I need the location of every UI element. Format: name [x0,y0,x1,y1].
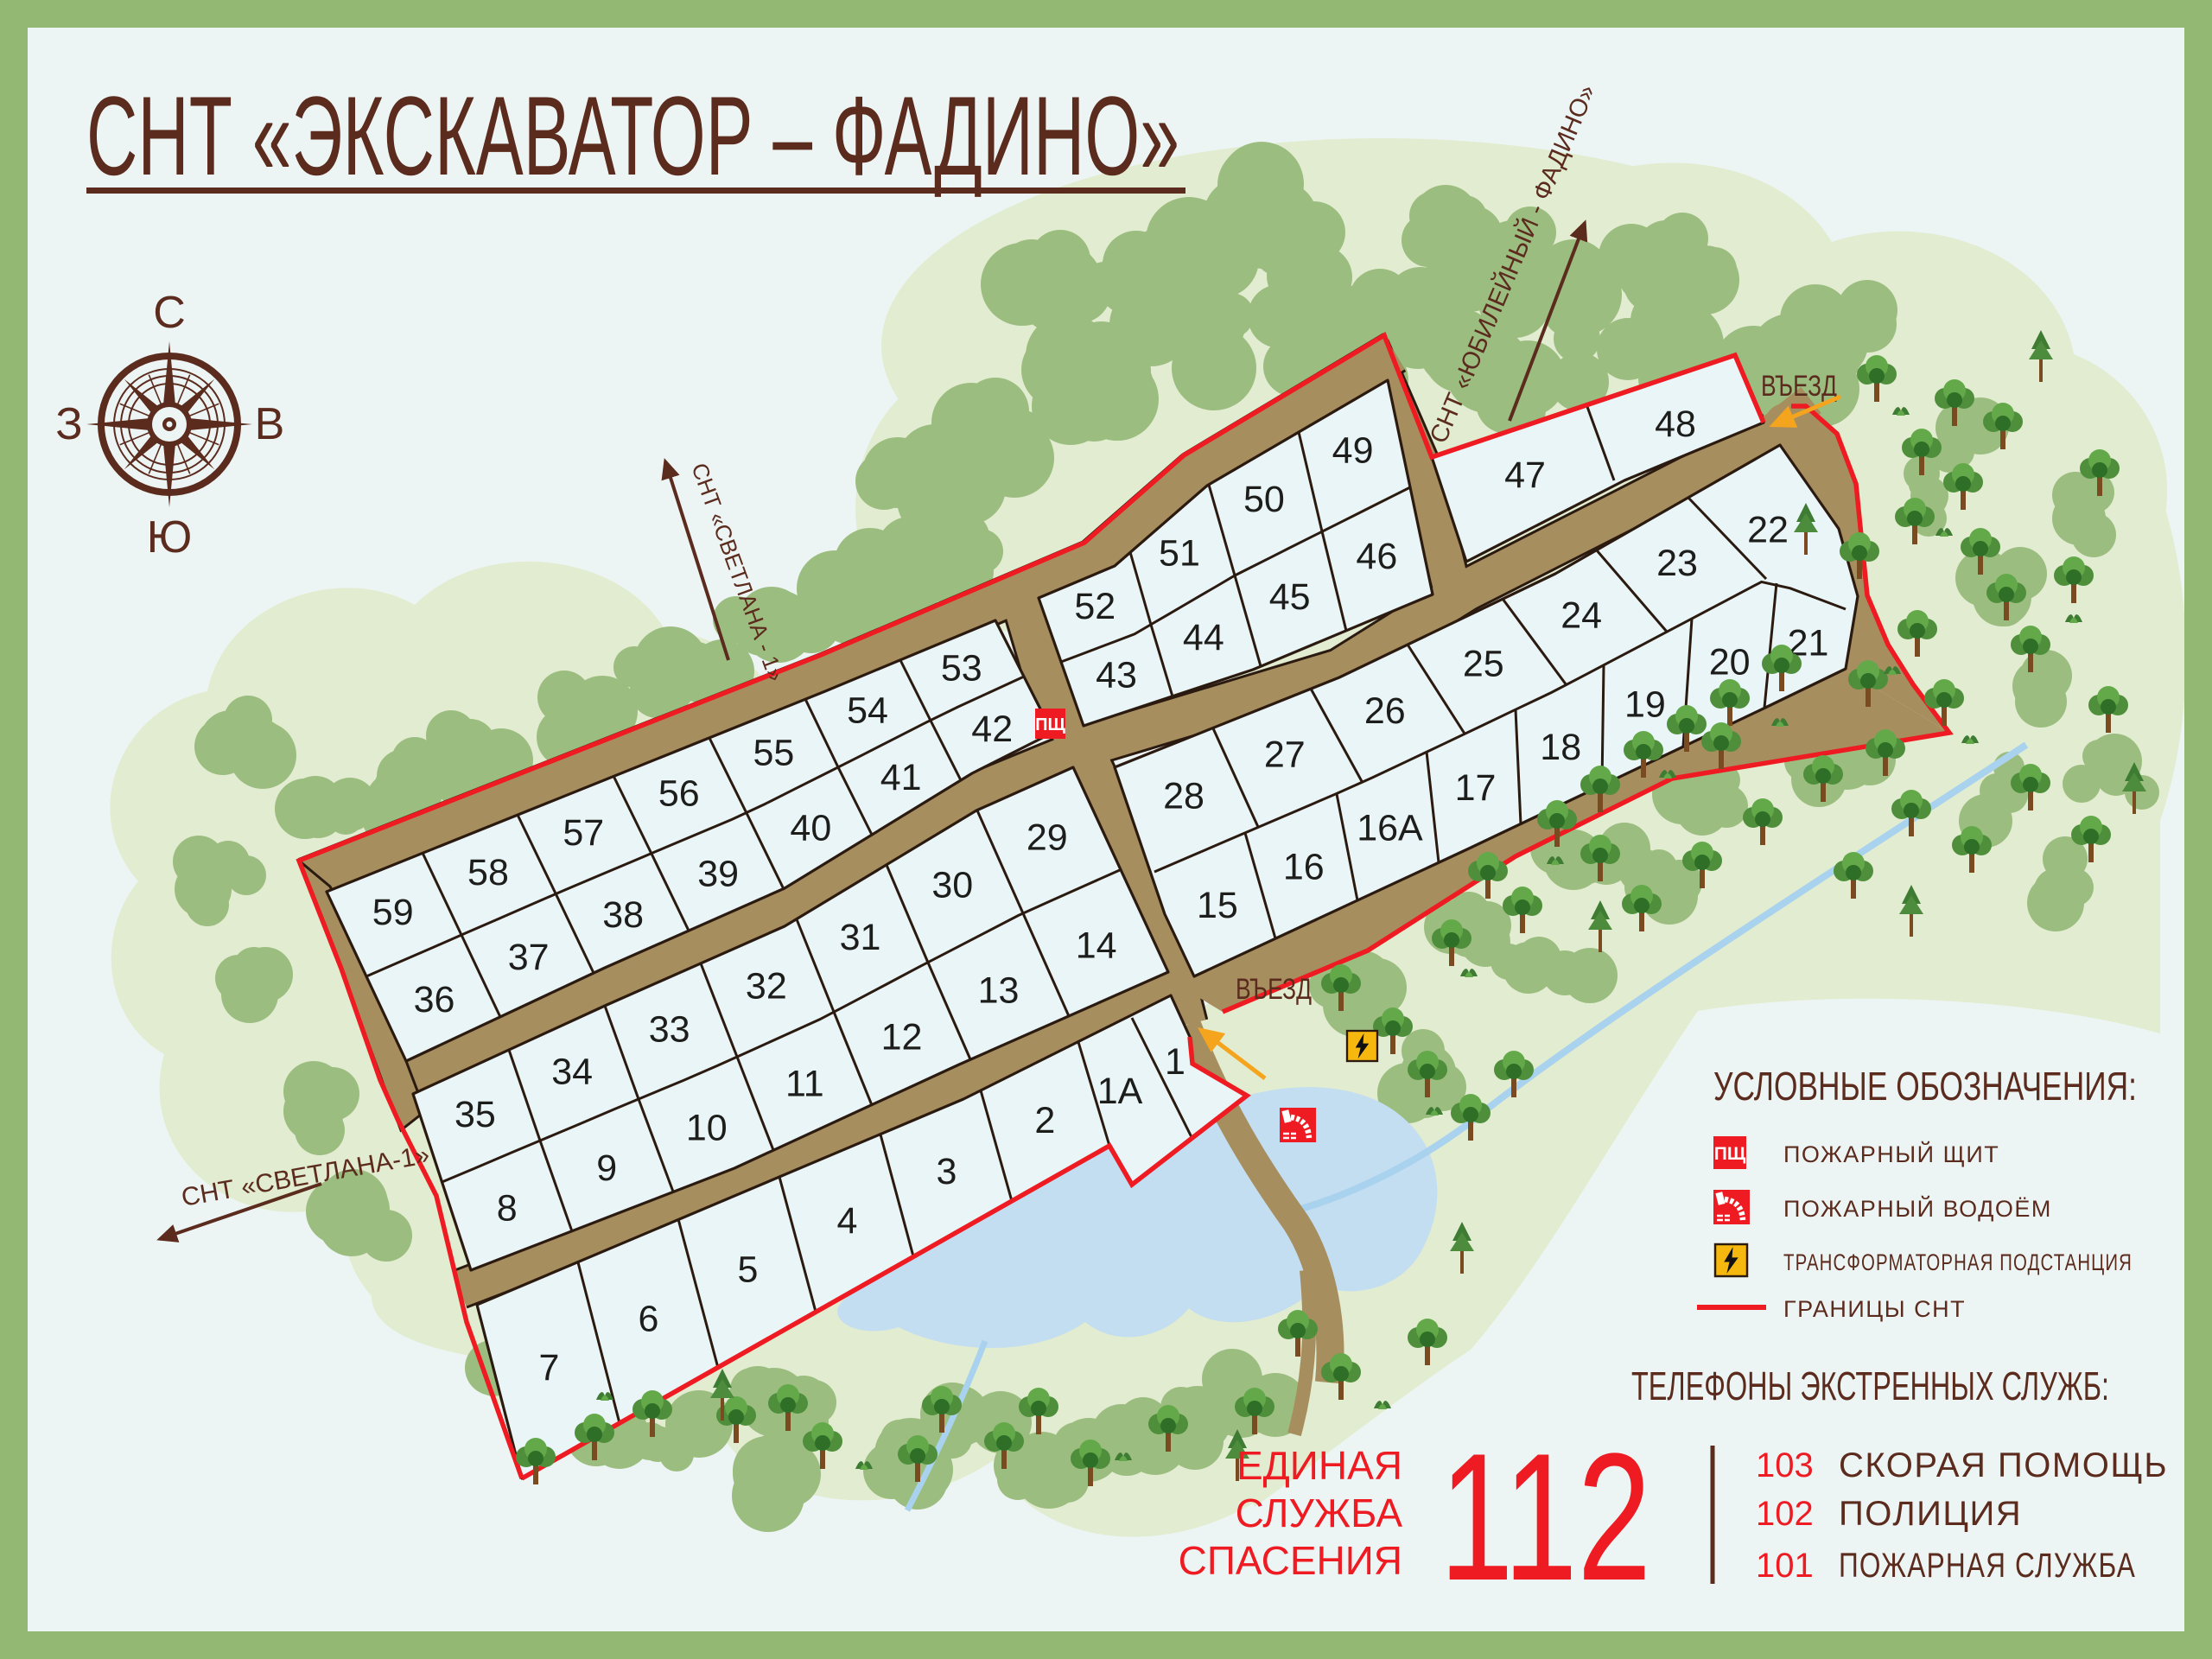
svg-text:26: 26 [1364,690,1406,732]
svg-text:Ю: Ю [147,512,193,563]
svg-text:УСЛОВНЫЕ ОБОЗНАЧЕНИЯ:: УСЛОВНЫЕ ОБОЗНАЧЕНИЯ: [1713,1064,2137,1109]
svg-text:29: 29 [1027,817,1068,859]
svg-text:СНТ «ЭКСКАВАТОР – ФАДИНО»: СНТ «ЭКСКАВАТОР – ФАДИНО» [86,73,1179,199]
svg-text:10: 10 [686,1108,728,1149]
svg-text:6: 6 [639,1298,659,1339]
svg-text:В: В [255,399,285,449]
svg-text:3: 3 [936,1151,957,1192]
svg-text:28: 28 [1163,776,1205,817]
svg-text:1А: 1А [1097,1071,1143,1112]
svg-text:37: 37 [508,937,550,978]
svg-text:ПЩ: ПЩ [1714,1144,1746,1164]
svg-text:СКОРАЯ ПОМОЩЬ: СКОРАЯ ПОМОЩЬ [1839,1446,2168,1484]
svg-text:ПЩ: ПЩ [1035,715,1065,734]
svg-text:52: 52 [1074,586,1116,627]
svg-text:20: 20 [1709,642,1751,683]
svg-text:40: 40 [790,808,831,849]
svg-text:8: 8 [497,1188,518,1230]
svg-text:15: 15 [1197,885,1238,926]
svg-text:101: 101 [1756,1547,1814,1585]
svg-text:1: 1 [1165,1041,1185,1083]
svg-text:ВЪЕЗД: ВЪЕЗД [1236,973,1312,1006]
svg-text:СЛУЖБА: СЛУЖБА [1236,1491,1403,1535]
svg-text:ТЕЛЕФОНЫ ЭКСТРЕННЫХ СЛУЖБ:: ТЕЛЕФОНЫ ЭКСТРЕННЫХ СЛУЖБ: [1631,1363,2109,1408]
svg-text:59: 59 [372,892,414,933]
svg-text:17: 17 [1455,767,1497,809]
svg-text:5: 5 [737,1249,758,1291]
svg-text:43: 43 [1096,655,1137,696]
svg-text:ВЪЕЗД: ВЪЕЗД [1761,370,1837,403]
svg-text:ПОЖАРНАЯ СЛУЖБА: ПОЖАРНАЯ СЛУЖБА [1839,1547,2136,1585]
svg-text:39: 39 [697,853,739,894]
svg-text:14: 14 [1076,925,1117,966]
svg-text:24: 24 [1560,595,1602,637]
svg-text:32: 32 [746,966,787,1007]
svg-text:36: 36 [414,979,455,1020]
svg-text:48: 48 [1655,404,1696,445]
svg-text:25: 25 [1463,643,1504,684]
svg-text:23: 23 [1656,543,1698,584]
svg-text:58: 58 [467,852,509,893]
svg-text:27: 27 [1264,734,1306,775]
svg-text:38: 38 [602,894,644,936]
svg-text:112: 112 [1440,1415,1651,1618]
svg-text:31: 31 [840,917,881,958]
svg-text:12: 12 [881,1017,923,1058]
svg-text:7: 7 [539,1347,560,1389]
svg-text:35: 35 [454,1094,496,1135]
svg-text:47: 47 [1504,454,1546,496]
svg-text:19: 19 [1624,684,1666,726]
svg-text:34: 34 [551,1052,593,1093]
svg-text:49: 49 [1332,429,1374,471]
svg-text:16А: 16А [1357,808,1423,849]
svg-text:4: 4 [836,1200,857,1242]
svg-text:9: 9 [596,1147,617,1189]
svg-text:42: 42 [971,709,1013,750]
svg-text:ЕДИНАЯ: ЕДИНАЯ [1236,1443,1402,1488]
svg-text:41: 41 [880,757,922,798]
svg-text:22: 22 [1747,509,1789,550]
svg-text:ПОЛИЦИЯ: ПОЛИЦИЯ [1839,1495,2022,1533]
svg-text:З: З [55,399,82,449]
svg-text:ТРАНСФОРМАТОРНАЯ ПОДСТАНЦИЯ: ТРАНСФОРМАТОРНАЯ ПОДСТАНЦИЯ [1783,1249,2133,1275]
svg-text:ПОЖАРНЫЙ ВОДОЁМ: ПОЖАРНЫЙ ВОДОЁМ [1783,1195,2052,1222]
svg-text:53: 53 [941,647,982,689]
svg-text:50: 50 [1243,479,1285,520]
svg-text:11: 11 [785,1064,824,1105]
svg-text:2: 2 [1034,1100,1055,1141]
svg-text:46: 46 [1356,536,1397,577]
svg-text:54: 54 [847,690,888,732]
svg-text:30: 30 [931,865,973,906]
svg-text:13: 13 [978,969,1020,1011]
svg-text:55: 55 [753,733,794,774]
svg-text:ГРАНИЦЫ СНТ: ГРАНИЦЫ СНТ [1783,1296,1966,1322]
svg-text:С: С [153,288,186,338]
svg-text:51: 51 [1159,532,1200,574]
svg-text:ПОЖАРНЫЙ ЩИТ: ПОЖАРНЫЙ ЩИТ [1783,1141,1999,1167]
svg-text:СПАСЕНИЯ: СПАСЕНИЯ [1179,1538,1402,1583]
svg-text:56: 56 [658,773,700,815]
svg-text:33: 33 [649,1009,690,1051]
svg-text:103: 103 [1756,1446,1814,1484]
svg-text:18: 18 [1540,727,1581,768]
svg-text:57: 57 [563,812,604,854]
svg-text:44: 44 [1183,617,1224,658]
svg-text:102: 102 [1756,1495,1814,1533]
svg-text:16: 16 [1283,847,1325,888]
svg-text:45: 45 [1269,576,1311,618]
